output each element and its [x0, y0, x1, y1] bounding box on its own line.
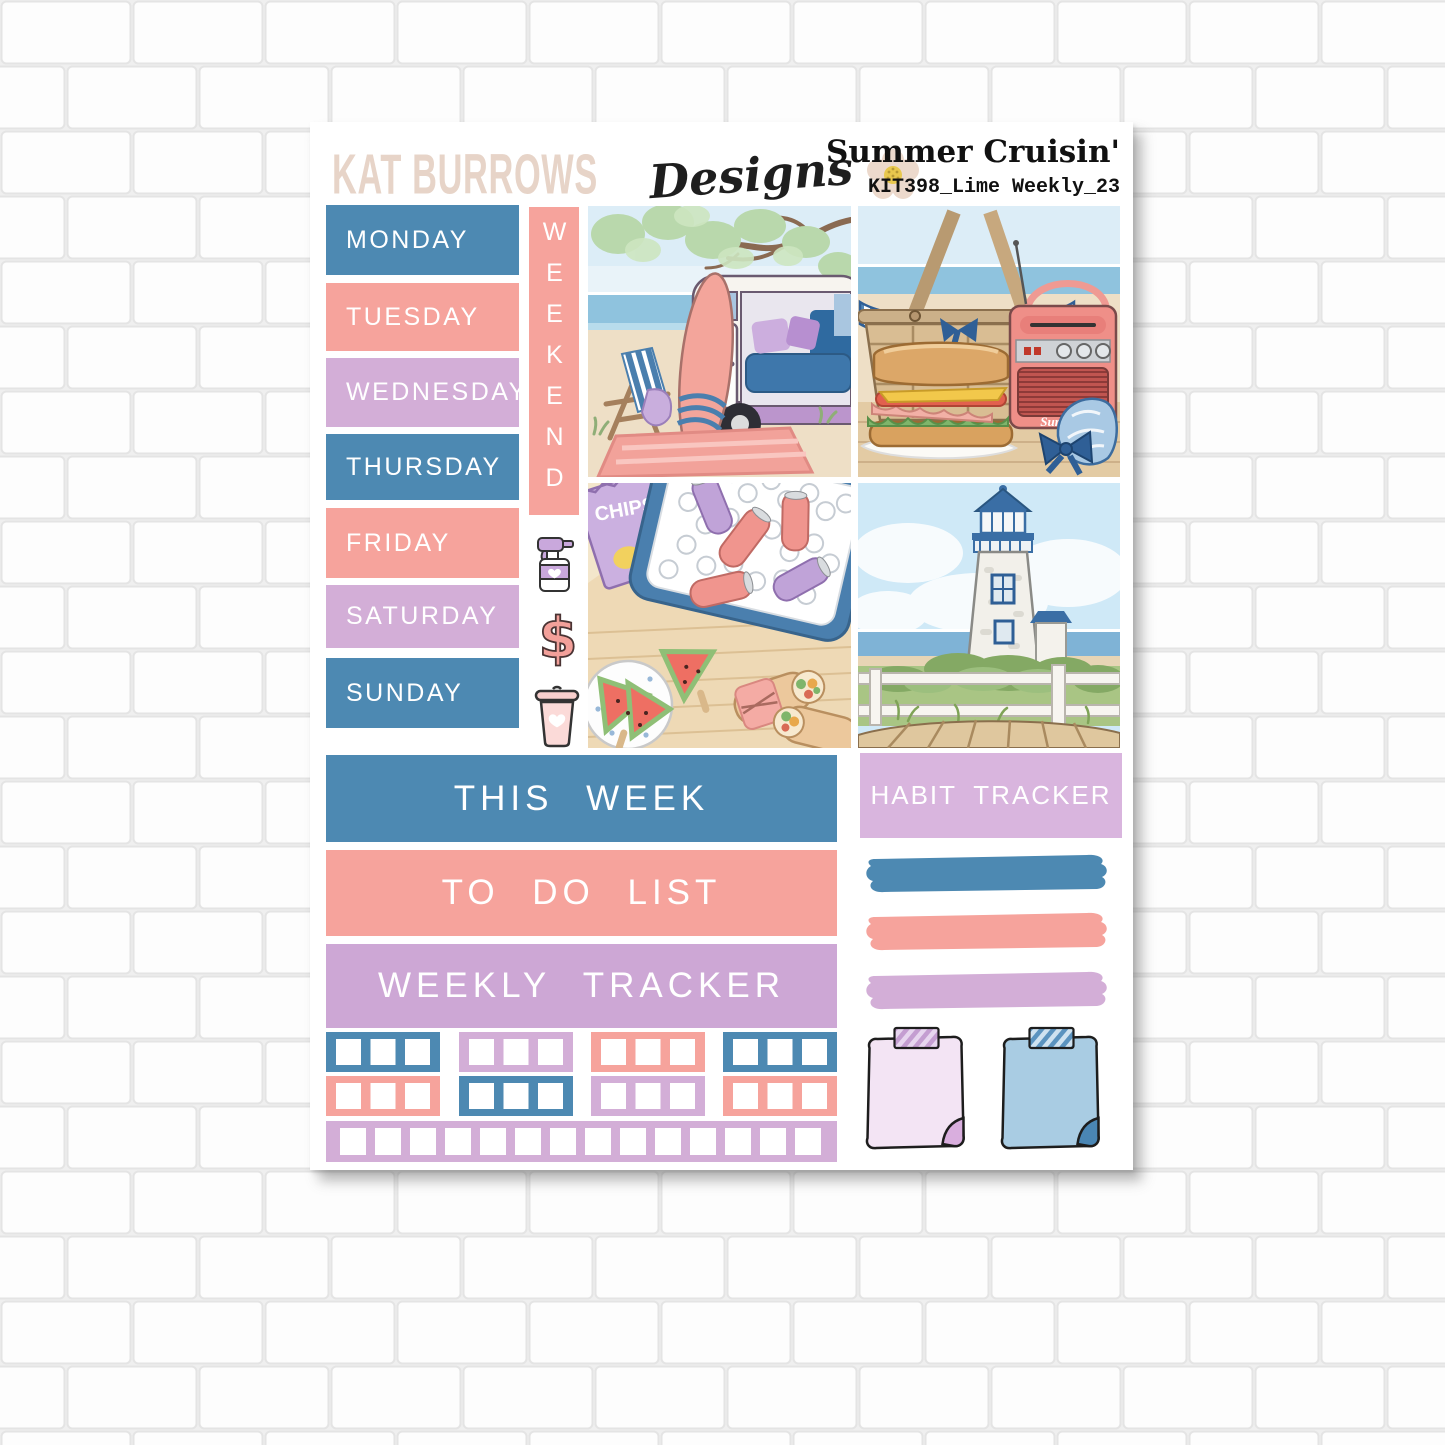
- habit-tracker-banner: HABIT TRACKER: [860, 753, 1122, 838]
- checkbox-sticker: [723, 1076, 837, 1116]
- beach-camper-illustration: [588, 206, 851, 477]
- day-sticker-sunday: SUNDAY: [326, 658, 519, 728]
- lavender-sticky-note: [858, 1026, 974, 1152]
- brand-script: Designs: [647, 141, 854, 209]
- weekend-sticker: WEEKEND: [529, 207, 579, 515]
- picnic-basket-illustration: Summer: [858, 206, 1120, 477]
- lavender-brush-stroke: [862, 967, 1112, 1013]
- checkbox-sticker: [459, 1076, 573, 1116]
- checkbox-sticker: [591, 1076, 705, 1116]
- sticker-sheet: KAT BURROWS Designs Summer Cruisin' KIT3…: [310, 122, 1133, 1170]
- checkbox-sticker: [591, 1032, 705, 1072]
- checkbox-sticker: [723, 1032, 837, 1072]
- checkbox-sticker: [459, 1032, 573, 1072]
- kit-title: Summer Cruisin': [826, 134, 1120, 170]
- brand-name: KAT BURROWS: [332, 143, 598, 208]
- lighthouse-illustration: [858, 483, 1120, 748]
- svg-text:$: $: [539, 607, 578, 669]
- page: KAT BURROWS Designs Summer Cruisin' KIT3…: [0, 0, 1445, 1445]
- dollar-sign-icon: $: [537, 607, 579, 669]
- salmon-brush-stroke: [862, 909, 1112, 953]
- day-sticker-saturday: SATURDAY: [326, 585, 519, 648]
- checkbox-sticker: [326, 1032, 440, 1072]
- day-sticker-wednesday: WEDNESDAY: [326, 358, 519, 427]
- blue-brush-stroke: [862, 852, 1112, 894]
- trash-can-icon: [529, 685, 585, 749]
- spray-bottle-icon: [532, 530, 578, 594]
- this-week-banner: THIS WEEK: [326, 755, 837, 842]
- day-sticker-friday: FRIDAY: [326, 508, 519, 578]
- day-sticker-thursday: THURSDAY: [326, 434, 519, 500]
- checkbox-strip-sticker: [326, 1121, 837, 1162]
- checkbox-sticker: [326, 1076, 440, 1116]
- day-sticker-tuesday: TUESDAY: [326, 283, 519, 351]
- to-do-list-banner: TO DO LIST: [326, 850, 837, 936]
- drinks-cooler-illustration: CHIPS: [588, 483, 851, 748]
- weekly-tracker-banner: WEEKLY TRACKER: [326, 944, 837, 1028]
- day-sticker-monday: MONDAY: [326, 205, 519, 275]
- kit-code: KIT398_Lime Weekly_23: [826, 176, 1120, 199]
- kit-info: Summer Cruisin' KIT398_Lime Weekly_23: [826, 134, 1120, 199]
- blue-sticky-note: [993, 1026, 1109, 1152]
